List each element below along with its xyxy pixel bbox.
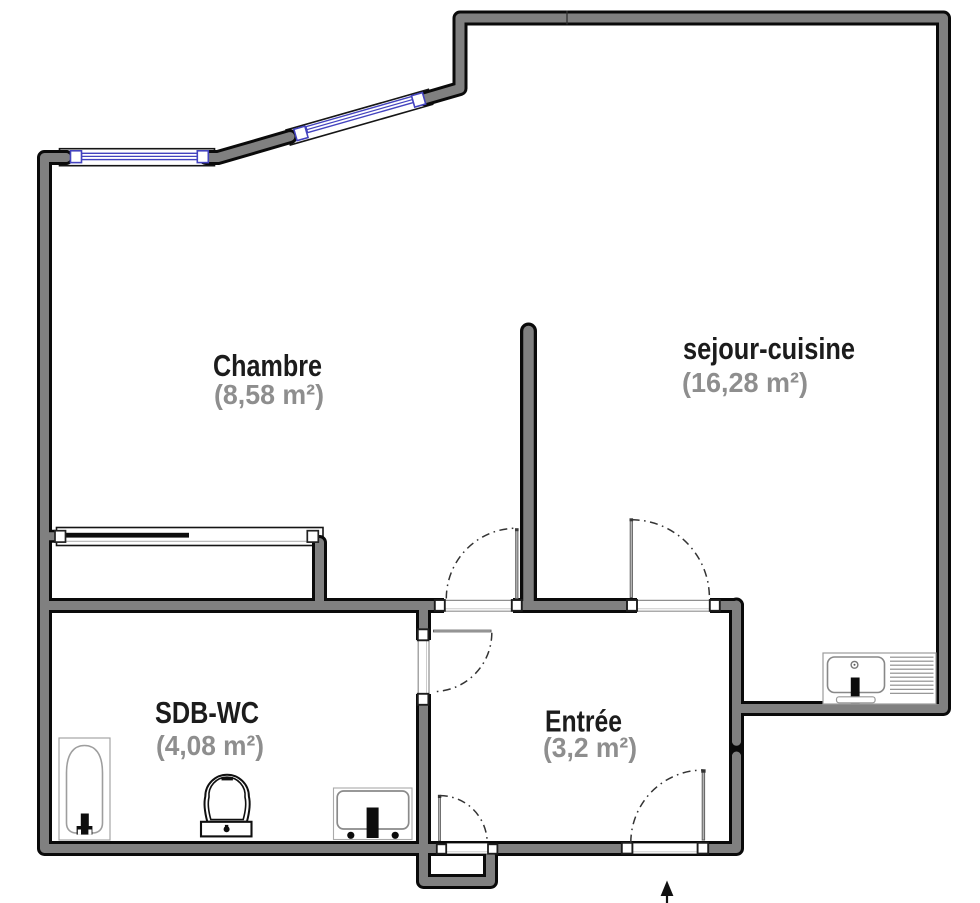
svg-text:(16,28 m²): (16,28 m²) — [682, 367, 808, 398]
svg-text:Chambre: Chambre — [213, 348, 322, 383]
svg-text:SDB-WC: SDB-WC — [155, 695, 259, 730]
svg-text:(3,2 m²): (3,2 m²) — [543, 732, 637, 763]
svg-text:(4,08 m²): (4,08 m²) — [156, 730, 264, 761]
svg-text:sejour-cuisine: sejour-cuisine — [683, 331, 855, 366]
svg-text:(8,58 m²): (8,58 m²) — [214, 379, 324, 410]
